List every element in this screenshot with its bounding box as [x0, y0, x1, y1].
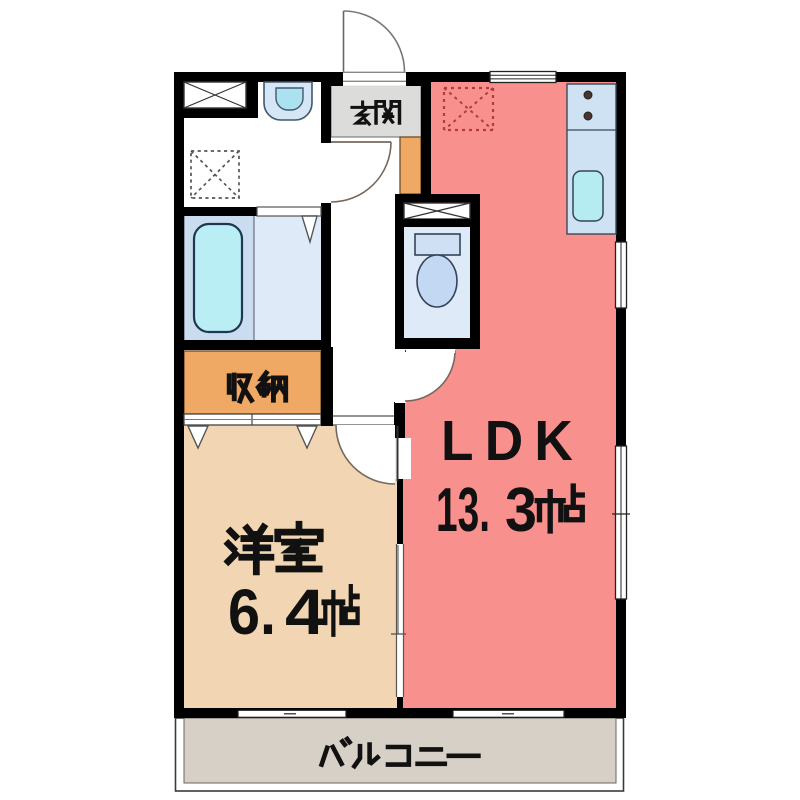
svg-text:6.: 6. — [228, 576, 276, 648]
svg-text:LDK: LDK — [441, 409, 584, 473]
svg-text:4: 4 — [285, 576, 325, 648]
svg-text:13.: 13. — [436, 476, 490, 545]
svg-text:3: 3 — [505, 476, 537, 545]
